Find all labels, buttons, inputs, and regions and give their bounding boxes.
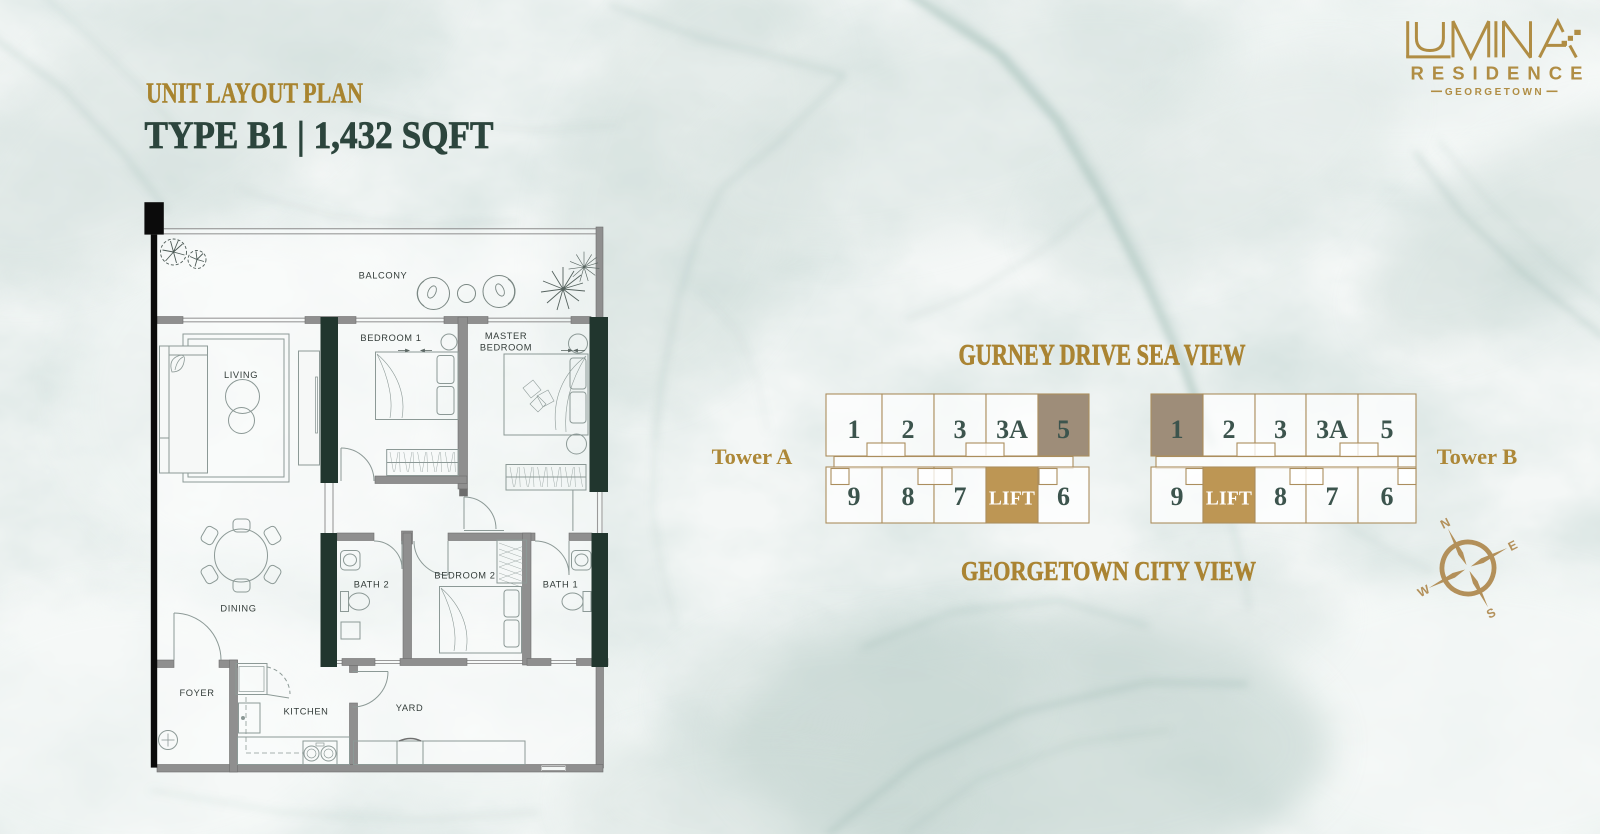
svg-text:DINING: DINING [220, 604, 256, 614]
svg-text:Tower B: Tower B [1437, 444, 1518, 469]
svg-text:3: 3 [954, 415, 967, 444]
svg-text:LIFT: LIFT [1206, 489, 1252, 510]
svg-text:1: 1 [1171, 415, 1184, 444]
svg-text:5: 5 [1057, 415, 1070, 444]
svg-text:9: 9 [1171, 482, 1184, 511]
svg-text:RESIDENCE: RESIDENCE [1411, 63, 1591, 84]
svg-text:8: 8 [1274, 482, 1287, 511]
svg-text:3A: 3A [1316, 415, 1348, 444]
svg-text:TYPE B1 | 1,432 SQFT: TYPE B1 | 1,432 SQFT [145, 114, 494, 157]
svg-text:3A: 3A [996, 415, 1028, 444]
svg-text:6: 6 [1057, 482, 1070, 511]
svg-text:GEORGETOWN: GEORGETOWN [1445, 87, 1544, 98]
svg-text:2: 2 [1223, 415, 1236, 444]
svg-text:KITCHEN: KITCHEN [283, 707, 328, 717]
svg-text:LIVING: LIVING [224, 370, 258, 380]
svg-text:7: 7 [1326, 482, 1339, 511]
svg-text:UNIT LAYOUT PLAN: UNIT LAYOUT PLAN [146, 79, 363, 110]
svg-text:BEDROOM 2: BEDROOM 2 [434, 571, 495, 581]
svg-text:BEDROOM 1: BEDROOM 1 [360, 333, 421, 343]
svg-text:1: 1 [848, 415, 861, 444]
svg-text:5: 5 [1381, 415, 1394, 444]
svg-text:BEDROOM: BEDROOM [480, 343, 532, 353]
svg-text:BALCONY: BALCONY [359, 271, 408, 281]
svg-text:3: 3 [1274, 415, 1287, 444]
svg-text:MASTER: MASTER [485, 331, 527, 341]
svg-text:6: 6 [1381, 482, 1394, 511]
svg-text:LIFT: LIFT [989, 489, 1035, 510]
svg-text:BATH 2: BATH 2 [354, 580, 389, 590]
svg-text:7: 7 [954, 482, 967, 511]
svg-text:Tower A: Tower A [712, 444, 793, 469]
svg-text:BATH 1: BATH 1 [543, 580, 578, 590]
svg-text:2: 2 [902, 415, 915, 444]
svg-text:8: 8 [902, 482, 915, 511]
svg-text:9: 9 [848, 482, 861, 511]
svg-text:GURNEY DRIVE SEA VIEW: GURNEY DRIVE SEA VIEW [959, 339, 1246, 372]
svg-text:GEORGETOWN CITY VIEW: GEORGETOWN CITY VIEW [961, 556, 1256, 586]
svg-text:YARD: YARD [396, 703, 424, 713]
svg-text:FOYER: FOYER [179, 688, 214, 698]
